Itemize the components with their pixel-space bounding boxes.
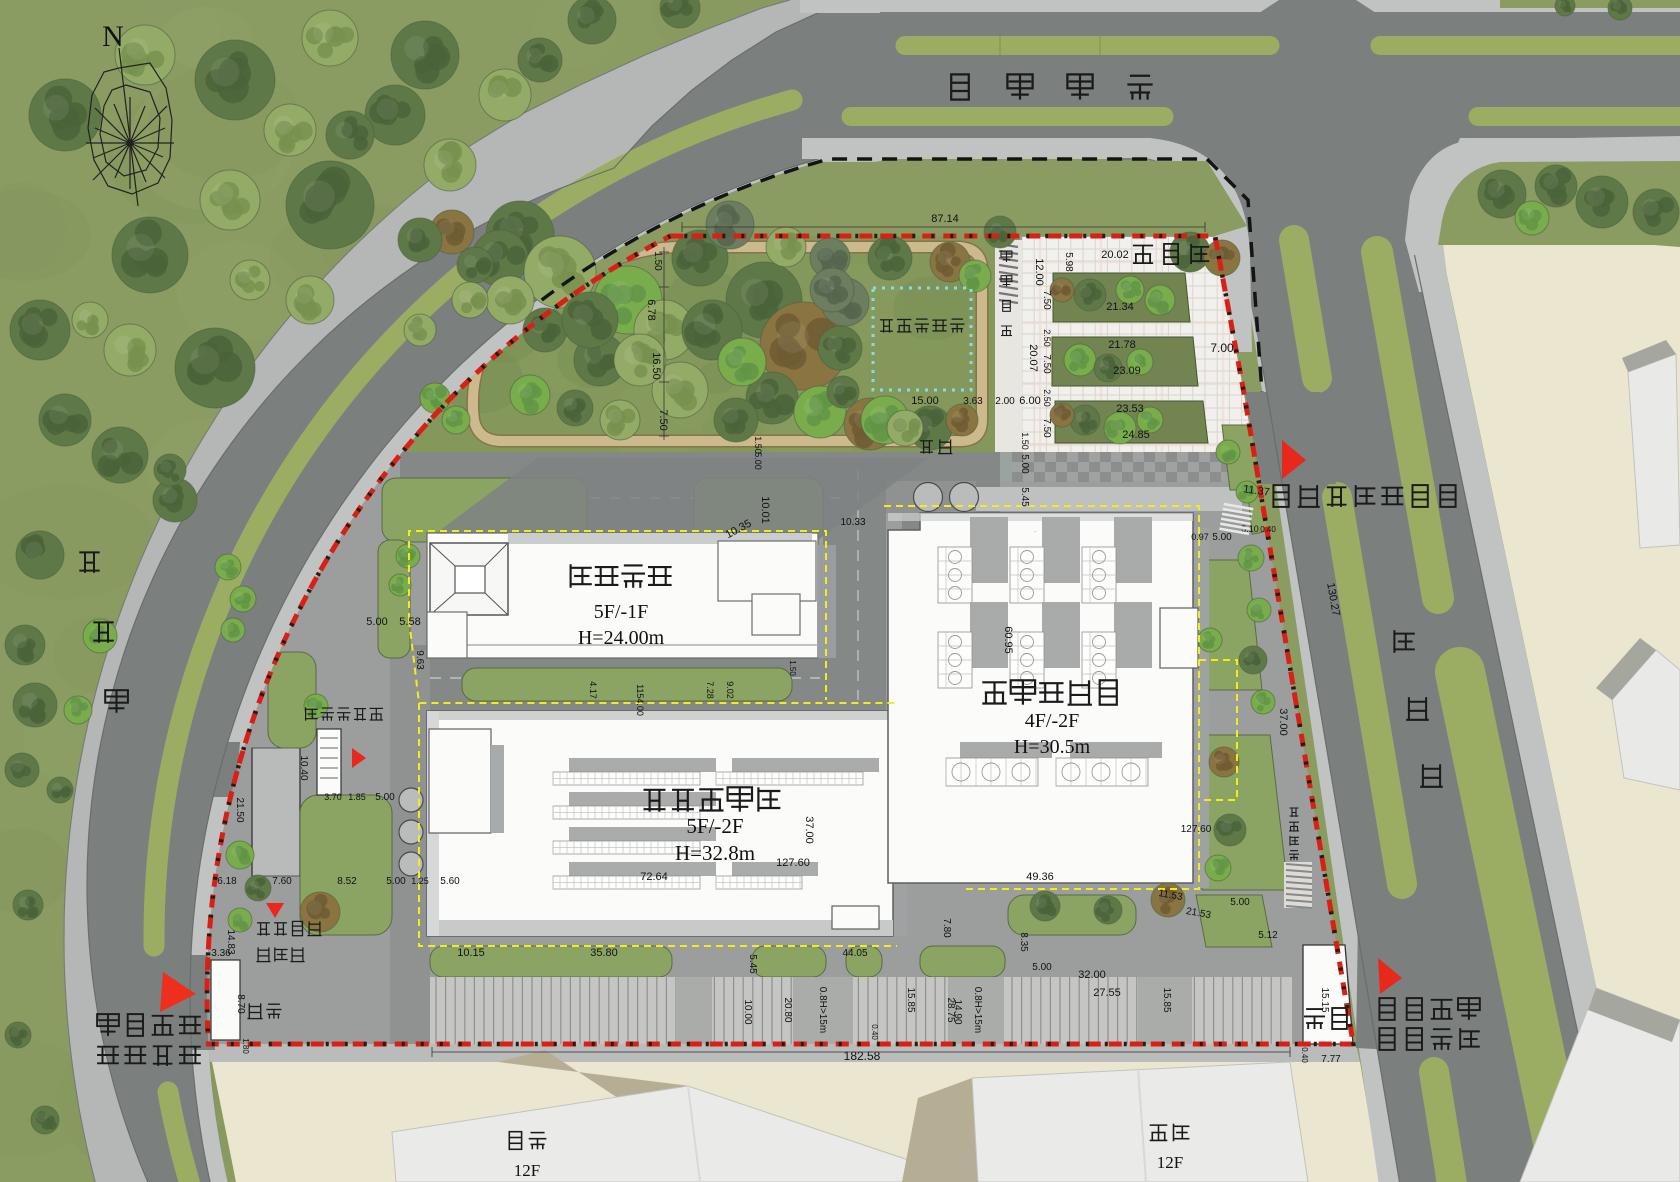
svg-text:10.40: 10.40: [298, 755, 309, 780]
svg-text:2.00: 2.00: [995, 396, 1015, 407]
svg-text:12.00: 12.00: [1033, 258, 1045, 286]
svg-text:12F: 12F: [514, 1161, 540, 1180]
svg-text:5.00: 5.00: [386, 876, 406, 887]
svg-text:32.00: 32.00: [1078, 969, 1106, 981]
svg-text:2.50: 2.50: [1042, 389, 1052, 407]
svg-text:8.52: 8.52: [337, 876, 357, 887]
svg-text:5.58: 5.58: [399, 616, 420, 628]
svg-text:5.00: 5.00: [375, 792, 395, 803]
svg-text:1.50: 1.50: [788, 660, 797, 676]
svg-text:12F: 12F: [1157, 1153, 1183, 1172]
svg-text:4.17: 4.17: [588, 681, 598, 699]
svg-text:9.02: 9.02: [725, 681, 735, 699]
svg-text:1.85: 1.85: [348, 792, 366, 802]
svg-text:6.18: 6.18: [217, 876, 237, 887]
svg-text:2.50: 2.50: [1042, 329, 1052, 347]
svg-text:H=32.8m: H=32.8m: [675, 841, 755, 865]
svg-text:24.85: 24.85: [1122, 429, 1150, 441]
svg-text:10.15: 10.15: [457, 947, 485, 959]
svg-text:15.15: 15.15: [1319, 987, 1330, 1012]
svg-text:1.50: 1.50: [652, 251, 663, 271]
svg-text:1.80: 1.80: [241, 1038, 250, 1054]
svg-text:21.34: 21.34: [1106, 301, 1134, 313]
svg-text:23.53: 23.53: [1116, 403, 1144, 415]
svg-text:44.05: 44.05: [842, 948, 867, 959]
svg-text:8.35: 8.35: [1018, 932, 1029, 952]
svg-text:H=24.00m: H=24.00m: [578, 627, 665, 649]
svg-text:35.80: 35.80: [590, 947, 618, 959]
svg-text:5.98: 5.98: [1063, 252, 1074, 272]
svg-text:10.33: 10.33: [1034, 531, 1037, 533]
svg-text:0.8H>15m: 0.8H>15m: [972, 987, 983, 1033]
svg-text:1.50: 1.50: [753, 436, 763, 454]
svg-text:0.40: 0.40: [1260, 525, 1276, 534]
svg-text:60.95: 60.95: [1002, 626, 1014, 654]
svg-text:5.00: 5.00: [1032, 962, 1052, 973]
svg-text:5.12: 5.12: [1258, 930, 1278, 941]
svg-text:5.00: 5.00: [1230, 897, 1250, 908]
svg-text:5.00: 5.00: [366, 616, 387, 628]
svg-text:27.55: 27.55: [1093, 987, 1121, 999]
svg-text:7.80: 7.80: [941, 918, 952, 938]
svg-text:1.25: 1.25: [411, 876, 429, 886]
svg-text:87.14: 87.14: [931, 213, 959, 225]
svg-text:1154.00: 1154.00: [635, 684, 645, 716]
svg-text:37.00: 37.00: [803, 816, 815, 844]
svg-text:9.63: 9.63: [414, 650, 425, 670]
svg-text:5F/-2F: 5F/-2F: [686, 814, 743, 838]
svg-text:21.78: 21.78: [1108, 339, 1136, 351]
svg-text:H=30.5m: H=30.5m: [1014, 736, 1091, 758]
svg-text:5.00: 5.00: [1019, 454, 1030, 474]
svg-text:5.45: 5.45: [1019, 487, 1030, 507]
svg-text:1.50: 1.50: [1020, 432, 1030, 450]
svg-text:5.60: 5.60: [440, 876, 460, 887]
svg-text:0.40: 0.40: [870, 1024, 879, 1040]
svg-text:0.40: 0.40: [1300, 1047, 1309, 1063]
svg-text:10.33: 10.33: [840, 517, 865, 528]
svg-text:182.58: 182.58: [844, 1049, 881, 1063]
svg-text:5.45: 5.45: [747, 954, 758, 974]
svg-text:7.50: 7.50: [1041, 418, 1052, 438]
svg-text:37.00: 37.00: [1277, 708, 1289, 736]
svg-text:4F/-2F: 4F/-2F: [1025, 710, 1079, 732]
svg-text:21.50: 21.50: [234, 797, 245, 822]
svg-text:0.97: 0.97: [1191, 532, 1209, 542]
svg-text:3.63: 3.63: [963, 396, 983, 407]
svg-text:49.36: 49.36: [1026, 871, 1054, 883]
svg-text:3.70: 3.70: [324, 792, 342, 802]
svg-text:20.07: 20.07: [1027, 344, 1039, 372]
svg-text:20.80: 20.80: [782, 997, 793, 1022]
svg-text:7.50: 7.50: [1041, 290, 1052, 310]
svg-text:16.50: 16.50: [650, 352, 662, 380]
svg-text:N: N: [102, 20, 124, 53]
svg-text:23.09: 23.09: [1113, 365, 1141, 377]
svg-text:127.60: 127.60: [1181, 824, 1212, 835]
svg-text:8.70: 8.70: [235, 994, 246, 1014]
svg-text:0.8H>15m: 0.8H>15m: [817, 987, 828, 1033]
svg-text:15.85: 15.85: [905, 987, 916, 1012]
svg-text:5.00: 5.00: [1212, 532, 1232, 543]
svg-text:72.64: 72.64: [640, 871, 668, 883]
svg-text:6.00: 6.00: [1019, 395, 1040, 407]
svg-text:10.00: 10.00: [742, 999, 753, 1024]
svg-text:10.01: 10.01: [759, 496, 771, 524]
svg-text:7.77: 7.77: [1321, 1054, 1341, 1065]
svg-text:6.78: 6.78: [645, 299, 657, 320]
svg-text:7.60: 7.60: [272, 876, 292, 887]
svg-text:5.00: 5.00: [753, 452, 763, 470]
svg-text:3.36: 3.36: [211, 948, 231, 959]
svg-text:127.60: 127.60: [776, 857, 810, 869]
svg-text:28.75: 28.75: [945, 997, 956, 1022]
svg-text:7.00: 7.00: [1210, 341, 1234, 355]
svg-text:15.00: 15.00: [911, 395, 939, 407]
svg-text:20.02: 20.02: [1101, 249, 1129, 261]
svg-text:5F/-1F: 5F/-1F: [594, 601, 648, 623]
svg-text:7.50: 7.50: [1041, 354, 1052, 374]
svg-text:7.50: 7.50: [657, 409, 669, 430]
svg-text:7.28: 7.28: [705, 681, 715, 699]
svg-text:15.85: 15.85: [1161, 987, 1172, 1012]
